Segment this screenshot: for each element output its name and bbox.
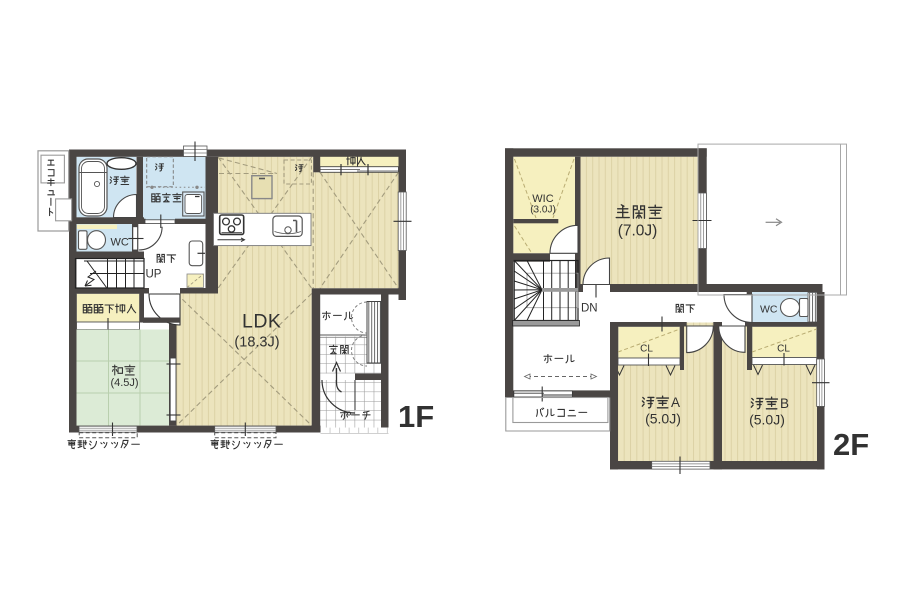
svg-text:UP: UP: [146, 269, 162, 281]
svg-text:A: A: [671, 395, 680, 410]
svg-text:WC: WC: [111, 237, 129, 249]
svg-text:CL: CL: [640, 344, 653, 355]
svg-text:(3.0J): (3.0J): [530, 205, 556, 216]
svg-text:LDK: LDK: [242, 311, 281, 333]
svg-text:(7.0J): (7.0J): [618, 223, 658, 240]
svg-text:(18.3J): (18.3J): [234, 335, 279, 351]
svg-text:1F: 1F: [398, 399, 434, 434]
svg-text:2F: 2F: [833, 427, 869, 462]
svg-text:(5.0J): (5.0J): [645, 411, 681, 427]
svg-text:B: B: [780, 396, 789, 411]
svg-text:(5.0J): (5.0J): [749, 412, 785, 428]
svg-text:WIC: WIC: [532, 193, 553, 205]
svg-text:WC: WC: [760, 304, 778, 316]
svg-text:(4.5J): (4.5J): [110, 377, 138, 389]
svg-text:CL: CL: [777, 344, 790, 355]
svg-text:DN: DN: [581, 303, 598, 315]
